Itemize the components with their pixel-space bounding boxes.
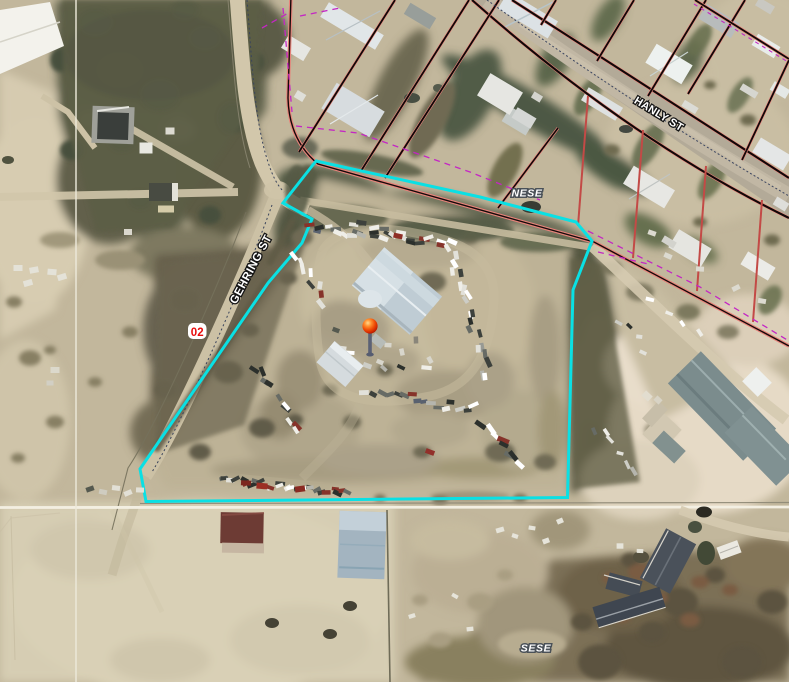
svg-text:02: 02 <box>191 327 204 339</box>
svg-text:SESE: SESE <box>521 643 552 655</box>
svg-text:NESE: NESE <box>512 188 543 200</box>
